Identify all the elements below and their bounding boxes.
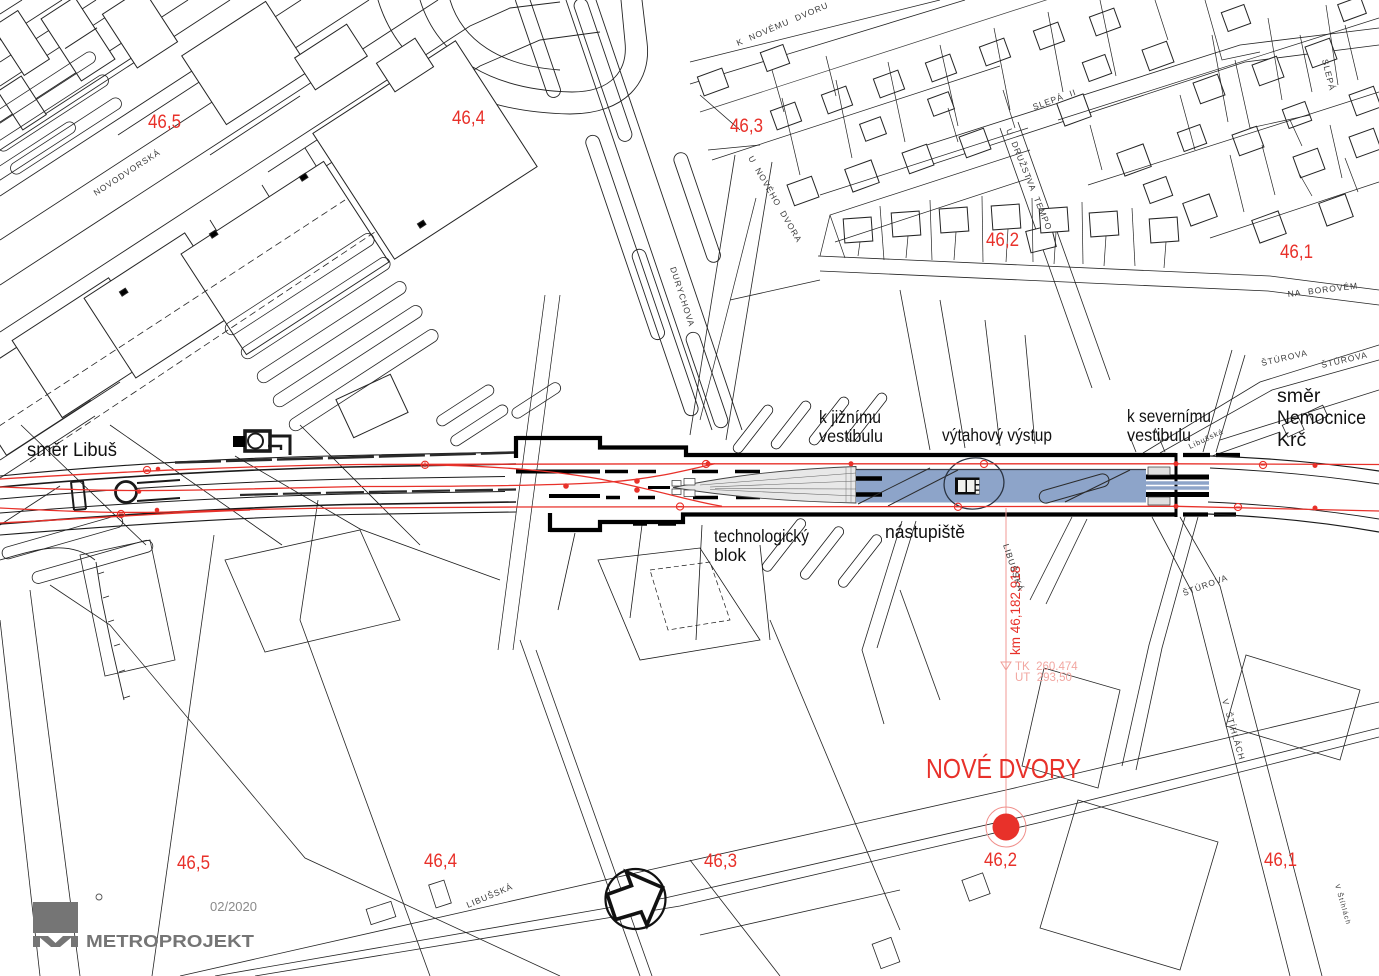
svg-text:46,3: 46,3 [704, 850, 737, 872]
svg-text:blok: blok [714, 545, 746, 565]
svg-text:k severnímu: k severnímu [1127, 406, 1211, 426]
svg-text:46,1: 46,1 [1280, 241, 1313, 263]
svg-text:46,4: 46,4 [452, 107, 485, 129]
svg-text:směr: směr [1277, 385, 1321, 407]
svg-text:46,5: 46,5 [148, 111, 181, 133]
svg-text:46,1: 46,1 [1264, 849, 1297, 871]
svg-text:46,4: 46,4 [424, 850, 457, 872]
svg-text:vestibulu: vestibulu [819, 426, 883, 446]
svg-text:nástupiště: nástupiště [885, 522, 965, 542]
svg-text:46,5: 46,5 [177, 852, 210, 874]
svg-text:výtahový výstup: výtahový výstup [942, 425, 1052, 445]
svg-text:směr Libuš: směr Libuš [27, 439, 117, 461]
svg-text:technologický: technologický [714, 526, 809, 546]
svg-text:Nemocnice: Nemocnice [1277, 407, 1366, 429]
svg-text:k jižnímu: k jižnímu [819, 407, 881, 427]
svg-text:46,2: 46,2 [986, 229, 1019, 251]
svg-text:METROPROJEKT: METROPROJEKT [86, 931, 254, 951]
svg-text:46,3: 46,3 [730, 115, 763, 137]
svg-text:NOVÉ DVORY: NOVÉ DVORY [926, 753, 1081, 784]
svg-text:UT 293,50: UT 293,50 [1015, 672, 1072, 684]
svg-text:02/2020: 02/2020 [210, 899, 257, 914]
svg-text:Krč: Krč [1277, 429, 1307, 451]
svg-text:vestibulu: vestibulu [1127, 425, 1191, 445]
svg-text:46,2: 46,2 [984, 849, 1017, 871]
